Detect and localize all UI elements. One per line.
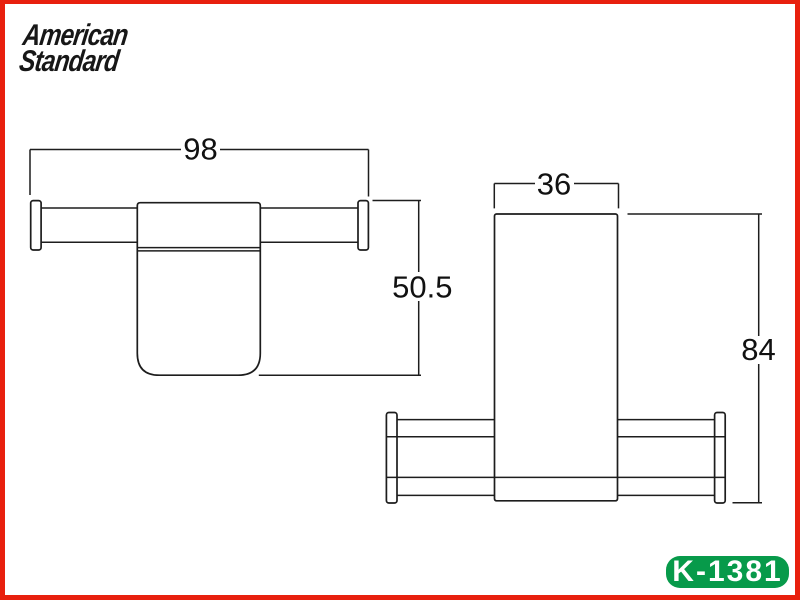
svg-text:84: 84	[741, 332, 775, 367]
svg-text:98: 98	[183, 132, 217, 167]
svg-text:50.5: 50.5	[392, 270, 452, 305]
svg-text:36: 36	[537, 167, 571, 202]
